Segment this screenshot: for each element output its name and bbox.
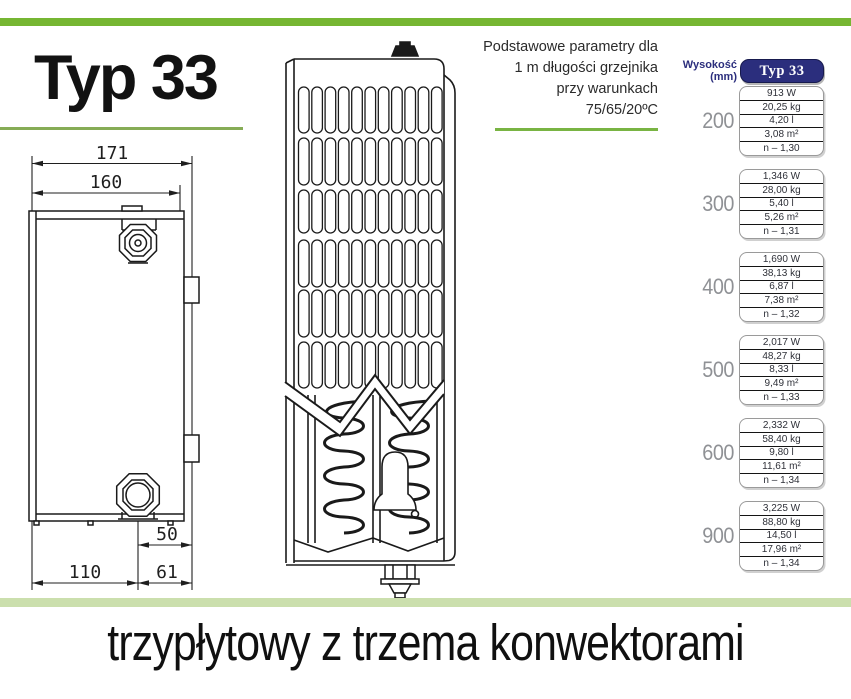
spec-value-cell: 48,27 kg (740, 349, 823, 363)
spec-value-cell: 28,00 kg (740, 183, 823, 197)
spec-value-cell: n – 1,30 (740, 141, 823, 155)
spec-value-cell: 9,49 m² (740, 376, 823, 390)
spec-group-box: 2,332 W58,40 kg9,80 l11,61 m²n – 1,34 (739, 418, 824, 488)
spec-value-cell: n – 1,34 (740, 473, 823, 487)
note-underline (495, 128, 658, 131)
spec-value-cell: 5,26 m² (740, 210, 823, 224)
dim-110: 110 (69, 562, 102, 583)
top-accent-bar (0, 18, 851, 26)
spec-value-cell: 2,332 W (740, 419, 823, 432)
height-label: 300 (671, 191, 734, 217)
note-line: Podstawowe parametry dla (440, 37, 658, 58)
height-label: 400 (671, 274, 734, 300)
type-header-label: Typ 33 (759, 63, 804, 80)
page-title: Typ 33 (34, 42, 217, 114)
spec-group-box: 2,017 W48,27 kg8,33 l9,49 m²n – 1,33 (739, 335, 824, 405)
spec-value-cell: 88,80 kg (740, 515, 823, 529)
spec-value-cell: 20,25 kg (740, 100, 823, 114)
spec-group-box: 1,690 W38,13 kg6,87 l7,38 m²n – 1,32 (739, 252, 824, 322)
title-underline (0, 127, 243, 130)
spec-group-box: 1,346 W28,00 kg5,40 l5,26 m²n – 1,31 (739, 169, 824, 239)
spec-value-cell: 14,50 l (740, 529, 823, 543)
grille-slots (299, 87, 443, 388)
bottom-accent-bar (0, 598, 851, 607)
spec-value-cell: n – 1,31 (740, 224, 823, 238)
spec-value-cell: 4,20 l (740, 114, 823, 128)
dim-171: 171 (96, 143, 129, 164)
spec-value-cell: 7,38 m² (740, 293, 823, 307)
spec-value-cell: 58,40 kg (740, 432, 823, 446)
dim-160: 160 (90, 172, 123, 193)
spec-value-cell: 6,87 l (740, 280, 823, 294)
note-line: przy warunkach (440, 79, 658, 100)
height-column-header: Wysokość (mm) (664, 59, 737, 83)
spec-value-cell: 1,346 W (740, 170, 823, 183)
front-view-drawing (278, 33, 468, 598)
bottom-valve (381, 565, 419, 598)
side-view-drawing: 171 160 50 110 61 (10, 140, 260, 600)
spec-table: Wysokość (mm) Typ 33 200913 W20,25 kg4,2… (664, 55, 830, 585)
parameters-note: Podstawowe parametry dla 1 m długości gr… (440, 37, 658, 121)
note-line: 1 m długości grzejnika (440, 58, 658, 79)
height-label: 500 (671, 357, 734, 383)
spec-sheet: Typ 33 Podstawowe parametry dla 1 m dług… (0, 0, 851, 699)
spec-value-cell: 8,33 l (740, 363, 823, 377)
height-label: 600 (671, 440, 734, 466)
spec-value-cell: 3,225 W (740, 502, 823, 515)
type-header-badge: Typ 33 (740, 59, 824, 83)
spec-value-cell: 11,61 m² (740, 459, 823, 473)
spec-value-cell: 2,017 W (740, 336, 823, 349)
spec-value-cell: 5,40 l (740, 197, 823, 211)
spec-group-box: 913 W20,25 kg4,20 l3,08 m²n – 1,30 (739, 86, 824, 156)
spec-value-cell: n – 1,34 (740, 556, 823, 570)
spec-value-cell: 17,96 m² (740, 542, 823, 556)
height-label: 200 (671, 108, 734, 134)
spec-value-cell: n – 1,33 (740, 390, 823, 404)
spec-value-cell: 913 W (740, 87, 823, 100)
spec-group-box: 3,225 W88,80 kg14,50 l17,96 m²n – 1,34 (739, 501, 824, 571)
spec-value-cell: 3,08 m² (740, 127, 823, 141)
spec-value-cell: n – 1,32 (740, 307, 823, 321)
note-line: 75/65/20ºC (440, 100, 658, 121)
spec-value-cell: 38,13 kg (740, 266, 823, 280)
height-label: 900 (671, 523, 734, 549)
footer-caption: trzypłytowy z trzema konwektorami (68, 613, 783, 672)
spec-value-cell: 9,80 l (740, 446, 823, 460)
dim-61: 61 (156, 562, 178, 583)
dim-50: 50 (156, 524, 178, 545)
spec-value-cell: 1,690 W (740, 253, 823, 266)
